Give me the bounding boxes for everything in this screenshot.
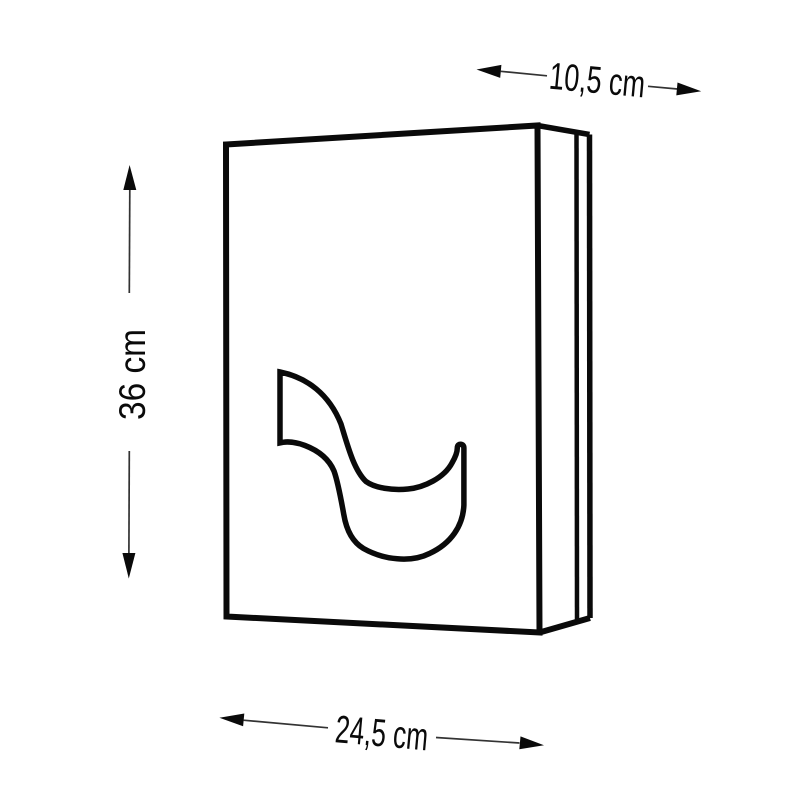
svg-text:10,5 cm: 10,5 cm bbox=[547, 56, 646, 107]
svg-text:36 cm: 36 cm bbox=[112, 329, 153, 420]
svg-text:24,5 cm: 24,5 cm bbox=[333, 708, 429, 759]
